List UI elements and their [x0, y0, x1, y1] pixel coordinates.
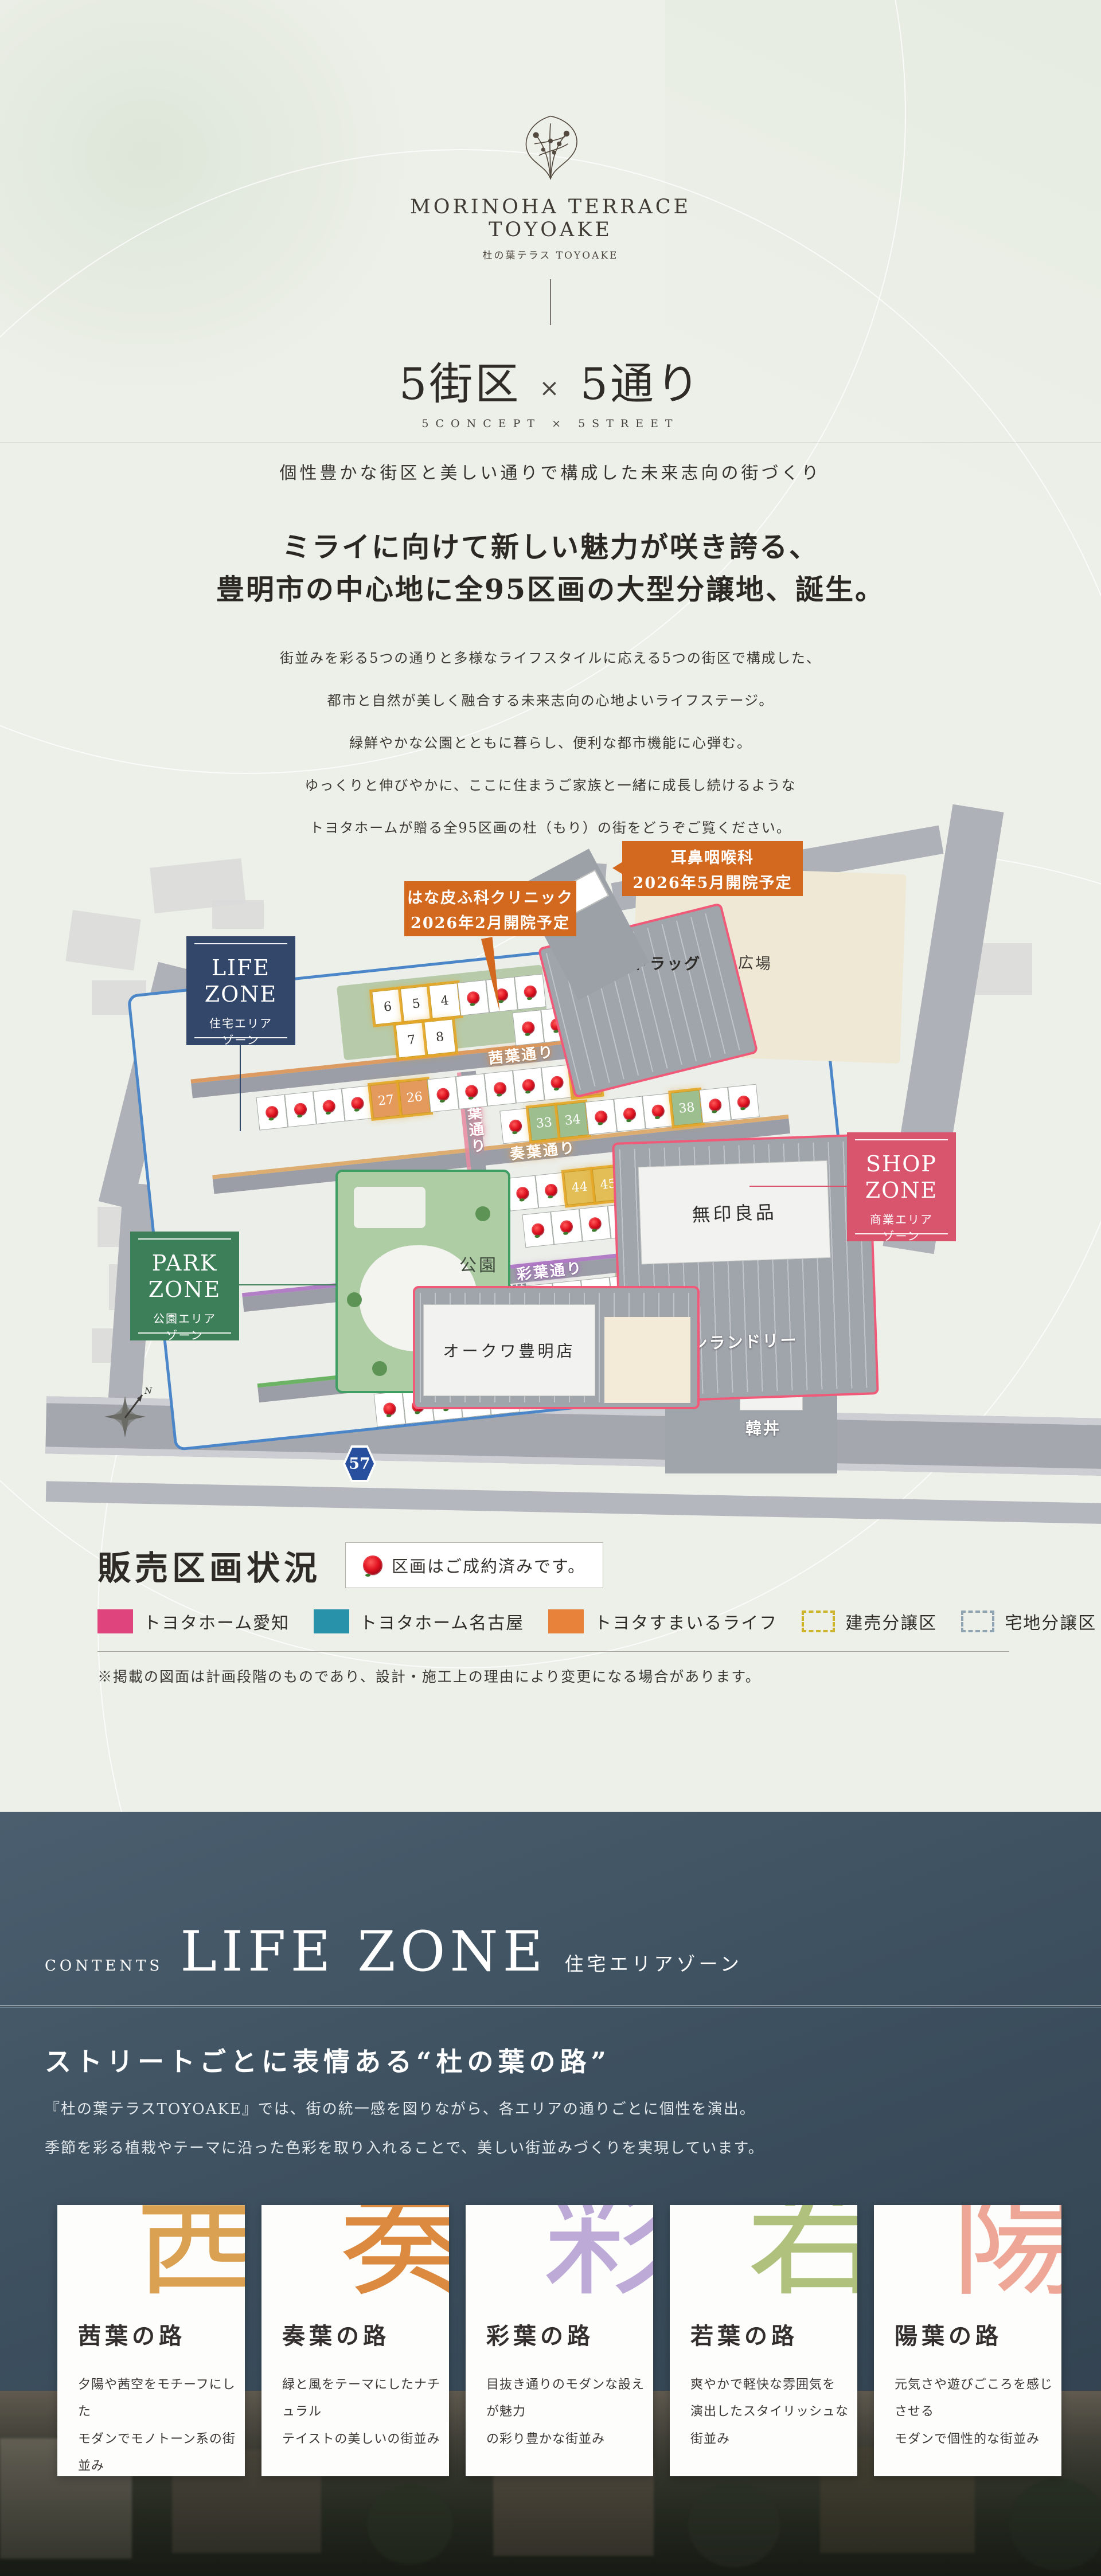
concept-left: 5街区 [399, 358, 521, 409]
headline-line2: 豊明市の中心地に全95区画の大型分譲地、誕生。 [216, 573, 885, 606]
legend-title: 販売区画状況 [97, 1541, 321, 1589]
lot-cell [550, 1209, 583, 1245]
street-card-hiba: 陽 陽葉の路 元気さや遊びごころを感じさせるモダンで個性的な街並み [874, 2205, 1061, 2476]
lot-cell [284, 1091, 317, 1127]
lot-cell: 44 [564, 1169, 596, 1205]
street-card-desc: 緑と風をテーマにしたナチュラルテイストの美しいの街並み [282, 2371, 449, 2453]
lot-cell [499, 1108, 532, 1144]
tree-icon [475, 1206, 490, 1221]
tree-icon [372, 1361, 387, 1376]
section-heading: CONTENTS LIFE ZONE 住宅エリアゾーン [45, 1920, 743, 1984]
park-zone-label: PARKZONE 公園エリアゾーン [130, 1232, 239, 1340]
okuwa-label: オークワ豊明店 [443, 1339, 575, 1362]
intro-headline: ミライに向けて新しい魅力が咲き誇る、 豊明市の中心地に全95区画の大型分譲地、誕… [0, 526, 1101, 611]
concept-subtitle: 5CONCEPT × 5STREET [0, 417, 1101, 430]
legend-label: 宅地分譲区 [1005, 1609, 1096, 1634]
color-swatch [548, 1609, 584, 1633]
color-swatch [314, 1609, 349, 1633]
svg-text:N: N [144, 1386, 153, 1396]
lot-cell: 7 [396, 1022, 428, 1058]
legend-item-takuchi: 宅地分譲区 [961, 1609, 1096, 1634]
lot-cell [642, 1093, 674, 1129]
city-block [212, 900, 264, 929]
legend-label: トヨタすまいるライフ [594, 1609, 778, 1634]
zone-en-line: ZONE [205, 982, 278, 1007]
photo-tree [367, 2484, 453, 2565]
callout-pointer [612, 862, 623, 874]
zone-jp-line: ゾーン [166, 1328, 204, 1342]
street-cards: 茜 茜葉の路 夕陽や茜空をモチーフにしたモダンでモノトーン系の街並み 奏 奏葉の… [57, 2205, 1061, 2476]
shop-zone-label: SHOPZONE 商業エリアゾーン [847, 1132, 956, 1241]
desc-line: モダンでモノトーン系の街並み [78, 2432, 236, 2473]
route-number: 57 [349, 1455, 370, 1473]
lot-cell: 26 [399, 1080, 431, 1116]
city-block [65, 910, 140, 971]
lot-cell [455, 1073, 487, 1109]
lot-cell [513, 1068, 545, 1104]
sold-rose-icon [363, 1555, 382, 1575]
section-title: LIFE ZONE [180, 1920, 547, 1984]
desc-line: モダンで個性的な街並み [895, 2432, 1040, 2446]
lot-number: 7 [407, 1033, 416, 1047]
color-swatch [97, 1609, 133, 1633]
intro-body-line: 都市と自然が美しく融合する未来志向の心地よいライフステージ。 [0, 689, 1101, 709]
lot-cell [342, 1085, 374, 1121]
section-subtitle: 住宅エリアゾーン [565, 1949, 743, 1976]
lot-cell: 5 [400, 986, 432, 1022]
callout-line2: 2026年2月開院予定 [411, 910, 570, 933]
park-label: 公園 [459, 1251, 498, 1276]
kandon-label: 韓丼 [745, 1416, 781, 1439]
callout-line2: 2026年5月開院予定 [633, 870, 792, 893]
page: MORINOHA TERRACE TOYOAKE 杜の葉テラス TOYOAKE … [0, 0, 1101, 2576]
sold-rose-icon [464, 1084, 478, 1098]
lot-cell [457, 980, 489, 1016]
lot-number: 34 [564, 1112, 581, 1128]
dashed-swatch [961, 1611, 994, 1632]
lot-cell: 6 [372, 989, 404, 1025]
concept-tagline: 個性豊かな街区と美しい通りで構成した未来志向の街づくり [0, 459, 1101, 484]
concept-right: 5通り [580, 358, 702, 409]
street-card-akane: 茜 茜葉の路 夕陽や茜空をモチーフにしたモダンでモノトーン系の街並み [57, 2205, 245, 2476]
sold-rose-icon [737, 1095, 751, 1109]
desc-line: 目抜き通りのモダンな設えが魅力 [486, 2378, 645, 2419]
street-card-title: 若葉の路 [690, 2317, 798, 2351]
sold-rose-icon [651, 1104, 665, 1118]
lot-cell [585, 1099, 617, 1135]
concept-title: 5街区×5通り [0, 349, 1101, 412]
lot-number: 44 [571, 1179, 588, 1195]
street-card-irodori: 彩 彩葉の路 目抜き通りのモダンな設えが魅力の彩り豊かな街並み [466, 2205, 653, 2476]
lot-number: 33 [536, 1115, 553, 1131]
decorative-kanji: 陽 [951, 2205, 1061, 2304]
zone-en-line: ZONE [865, 1178, 938, 1203]
street-card-title: 彩葉の路 [486, 2317, 594, 2351]
callout-skin-clinic: はな皮ふ科クリニック 2026年2月開院予定 [404, 881, 576, 936]
zone-jp-line: 商業エリア [870, 1213, 933, 1226]
sold-rose-icon [521, 1021, 535, 1035]
zone-connector [239, 1284, 337, 1285]
brand-line2: TOYOAKE [0, 218, 1101, 241]
zone-jp-line: 公園エリア [153, 1312, 216, 1326]
park-plaza [354, 1187, 425, 1228]
lot-cell [614, 1096, 646, 1132]
leaf-logo-icon [514, 112, 587, 187]
sold-rose-icon [560, 1219, 573, 1233]
sold-rose-icon [466, 991, 480, 1004]
zone-en-line: ZONE [149, 1277, 221, 1302]
zone-en: SHOPZONE [847, 1151, 956, 1204]
sold-rose-icon [594, 1110, 608, 1124]
divider-line [550, 279, 551, 325]
desc-line: 元気さや遊びごころを感じさせる [895, 2378, 1053, 2419]
callout-line1: 耳鼻咽喉科 [671, 845, 754, 867]
sold-note-text: 区画はご成約済みです。 [392, 1553, 585, 1577]
brand-jp: 杜の葉テラス TOYOAKE [0, 247, 1101, 261]
street-card-desc: 目抜き通りのモダンな設えが魅力の彩り豊かな街並み [486, 2371, 653, 2453]
desc-line: の彩り豊かな街並み [486, 2432, 605, 2446]
lot-cell [579, 1206, 611, 1242]
divider [0, 2006, 1101, 2006]
sold-rose-icon [516, 1186, 529, 1200]
intro-body-line: 街並みを彩る5つの通りと多様なライフスタイルに応える5つの街区で構成した、 [0, 647, 1101, 667]
sales-legend: 販売区画状況 区画はご成約済みです。 トヨタホーム愛知 トヨタホーム名古屋 トヨ… [97, 1541, 1009, 1686]
lot-cell [313, 1088, 345, 1124]
site-map: 茜葉通り 奏葉通り 彩葉通り 若葉通り 陽葉通り 654 78 272641 3… [69, 828, 1101, 1539]
lot-cell: 4 [429, 983, 461, 1019]
concept-x: × [539, 374, 561, 402]
desc-line: 演出したスタイリッシュな街並み [690, 2405, 849, 2446]
desc-line: テイストの美しいの街並み [282, 2432, 440, 2446]
sold-rose-icon [436, 1088, 450, 1101]
eyebrow: CONTENTS [45, 1957, 163, 1975]
zone-jp: 商業エリアゾーン [847, 1211, 956, 1245]
life-zone-label: LIFEZONE 住宅エリアゾーン [186, 936, 295, 1045]
street-card-desc: 爽やかで軽快な雰囲気を演出したスタイリッシュな街並み [690, 2371, 857, 2453]
lot-cell [427, 1076, 459, 1112]
decorative-kanji: 茜 [134, 2205, 245, 2304]
lot-cell: 34 [557, 1102, 589, 1138]
street-card-title: 陽葉の路 [895, 2317, 1002, 2351]
legend-label: トヨタホーム名古屋 [360, 1609, 524, 1634]
paragraph-line: 『杜の葉テラスTOYOAKE』では、街の統一感を図りながら、各エリアの通りごとに… [45, 2101, 756, 2118]
zone-jp: 公園エリアゾーン [130, 1311, 239, 1344]
road [46, 1481, 1101, 1524]
lot-cell [374, 1391, 406, 1427]
sold-rose-icon [588, 1217, 602, 1230]
lot-number: 6 [383, 999, 393, 1014]
zone-jp: 住宅エリアゾーン [186, 1015, 295, 1049]
sold-rose-icon [544, 1183, 558, 1197]
sold-rose-icon [265, 1105, 279, 1119]
legend-items: トヨタホーム愛知 トヨタホーム名古屋 トヨタすまいるライフ 建売分譲区 宅地分譲… [97, 1609, 1009, 1634]
decorative-kanji: 若 [747, 2205, 857, 2304]
lot-row: 78 [396, 1019, 456, 1058]
divider [0, 443, 1101, 443]
sold-rose-icon [509, 1119, 522, 1133]
lot-number: 27 [377, 1092, 395, 1108]
lot-cell: 8 [424, 1019, 456, 1055]
contents-section: CONTENTS LIFE ZONE 住宅エリアゾーン ストリートごとに表情ある… [0, 1812, 1101, 2576]
legend-item-smilelife: トヨタすまいるライフ [548, 1609, 778, 1634]
sand-plaza [604, 1317, 690, 1403]
lot-cell [507, 1175, 539, 1211]
legend-item-tateuri: 建売分譲区 [802, 1609, 937, 1634]
street-paragraph: 『杜の葉テラスTOYOAKE』では、街の統一感を図りながら、各エリアの通りごとに… [45, 2090, 764, 2168]
lot-cell [728, 1084, 760, 1120]
desc-line: 緑と風をテーマにしたナチュラル [282, 2378, 440, 2419]
callout-ent-clinic: 耳鼻咽喉科 2026年5月開院予定 [622, 841, 803, 896]
sold-rose-icon [522, 1078, 536, 1092]
street-card-wakaba: 若 若葉の路 爽やかで軽快な雰囲気を演出したスタイリッシュな街並み [670, 2205, 857, 2476]
lot-cell [256, 1094, 288, 1131]
decorative-kanji: 彩 [542, 2205, 653, 2304]
lot-cell [484, 1070, 516, 1107]
zone-connector [749, 1186, 847, 1187]
street-card-desc: 夕陽や茜空をモチーフにしたモダンでモノトーン系の街並み [78, 2371, 245, 2476]
brand-logo: MORINOHA TERRACE TOYOAKE 杜の葉テラス TOYOAKE [0, 112, 1101, 261]
zone-jp-line: ゾーン [222, 1033, 260, 1047]
okuwa-area: オークワ豊明店 [413, 1286, 700, 1409]
zone-en: PARKZONE [130, 1250, 239, 1303]
lot-number: 8 [435, 1030, 445, 1045]
sold-rose-icon [493, 1081, 507, 1095]
legend-label: 建売分譲区 [845, 1609, 937, 1634]
street-card-desc: 元気さや遊びごころを感じさせるモダンで個性的な街並み [895, 2371, 1061, 2453]
sold-rose-icon [623, 1107, 637, 1121]
desc-line: 夕陽や茜空をモチーフにした [78, 2378, 236, 2419]
zone-jp-line: 住宅エリア [209, 1017, 272, 1030]
sold-rose-icon [294, 1103, 307, 1116]
lot-cell: 27 [370, 1082, 402, 1119]
brand-line1: MORINOHA TERRACE [0, 196, 1101, 218]
photo-tree [688, 2481, 780, 2567]
lot-cell [514, 974, 546, 1010]
lot-number: 5 [412, 996, 421, 1011]
sold-rose-icon [524, 985, 537, 999]
okuwa-building: オークワ豊明店 [423, 1304, 595, 1396]
intro-body-line: 緑鮮やかな公園とともに暮らし、便利な都市機能に心弾む。 [0, 732, 1101, 752]
lot-number: 4 [440, 993, 450, 1008]
zone-jp-line: ゾーン [883, 1229, 920, 1243]
callout-line1: はな皮ふ科クリニック [407, 885, 573, 908]
street-card-title: 奏葉の路 [282, 2317, 390, 2351]
legend-disclaimer: ※掲載の図面は計画段階のものであり、設計・施工上の理由により変更になる場合があり… [97, 1666, 1009, 1686]
sold-rose-icon [382, 1402, 396, 1416]
sold-rose-icon [350, 1096, 364, 1110]
sold-rose-icon [531, 1223, 545, 1237]
zone-connector [240, 1045, 241, 1131]
muji-label: 無印良品 [692, 1198, 778, 1227]
legend-item-nagoya: トヨタホーム名古屋 [314, 1609, 524, 1634]
paragraph-line: 季節を彩る植栽やテーマに沿った色彩を取り入れることで、美しい街並みづくりを実現し… [45, 2140, 764, 2157]
street-card-title: 茜葉の路 [78, 2317, 186, 2351]
lot-number: 26 [406, 1089, 423, 1105]
legend-item-aichi: トヨタホーム愛知 [97, 1609, 290, 1634]
headline-line1: ミライに向けて新しい魅力が咲き誇る、 [282, 530, 819, 564]
lot-cell: 33 [528, 1105, 560, 1141]
zone-en-line: LIFE [212, 955, 270, 980]
street-name-label: 彩葉通り [516, 1256, 584, 1284]
photo-tree [1009, 2479, 1101, 2570]
divider [97, 1651, 1009, 1652]
street-heading: ストリートごとに表情ある“杜の葉の路” [45, 2041, 611, 2079]
lot-cell [512, 1010, 544, 1046]
zone-en: LIFEZONE [186, 955, 295, 1008]
lot-cell: 38 [671, 1090, 703, 1126]
compass-icon: N [96, 1386, 154, 1455]
decorative-kanji: 奏 [338, 2205, 449, 2304]
lot-cell [699, 1087, 731, 1123]
sold-rose-icon [708, 1098, 722, 1112]
lot-cell [522, 1211, 554, 1248]
sold-rose-icon [322, 1100, 336, 1113]
street-card-kanade: 奏 奏葉の路 緑と風をテーマにしたナチュラルテイストの美しいの街並み [261, 2205, 449, 2476]
zone-en-line: SHOP [866, 1151, 937, 1176]
sold-rose-icon [550, 1076, 564, 1089]
lot-cell [535, 1172, 567, 1209]
zone-en-line: PARK [152, 1250, 218, 1276]
sold-note-box: 区画はご成約済みです。 [345, 1542, 603, 1588]
tree-icon [347, 1292, 362, 1307]
intro-body-line: ゆっくりと伸びやかに、ここに住まうご家族と一緒に成長し続けるような [0, 774, 1101, 794]
desc-line: 爽やかで軽快な雰囲気を [690, 2378, 835, 2392]
dashed-swatch [802, 1611, 835, 1632]
lot-number: 38 [678, 1100, 695, 1116]
legend-label: トヨタホーム愛知 [143, 1609, 290, 1634]
muji-building: 無印良品 [638, 1160, 831, 1264]
